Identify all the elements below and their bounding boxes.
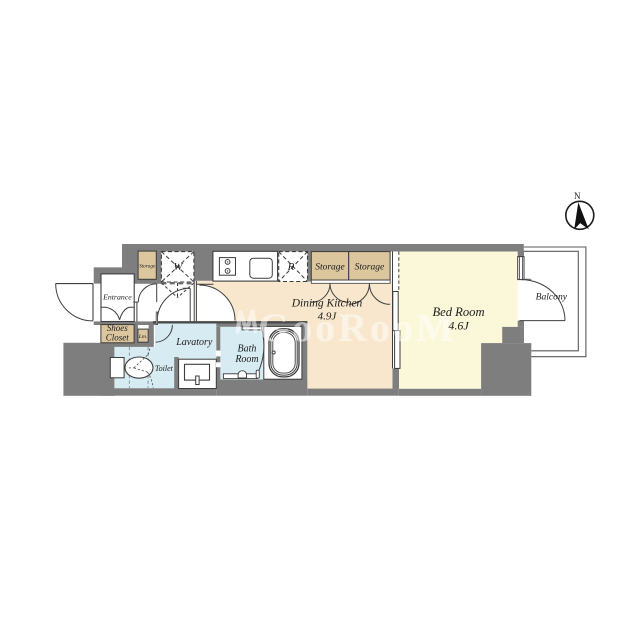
- svg-text:Dining Kitchen: Dining Kitchen: [291, 298, 363, 310]
- svg-text:Lm.: Lm.: [138, 334, 148, 340]
- svg-text:R: R: [287, 261, 295, 273]
- svg-text:4.6J: 4.6J: [448, 319, 469, 333]
- svg-text:W: W: [173, 261, 183, 273]
- svg-text:Storage: Storage: [355, 262, 385, 272]
- svg-text:GooRooM: GooRooM: [258, 305, 457, 350]
- svg-text:Bath: Bath: [238, 343, 257, 354]
- svg-text:Storage: Storage: [139, 263, 156, 269]
- svg-text:Toilet: Toilet: [155, 364, 174, 373]
- svg-text:Bed Room: Bed Room: [432, 305, 484, 319]
- svg-text:N: N: [574, 191, 581, 201]
- svg-text:Lavatory: Lavatory: [175, 337, 213, 348]
- svg-text:Entrance: Entrance: [102, 293, 132, 302]
- svg-text:Closet: Closet: [106, 332, 130, 342]
- svg-text:4.9J: 4.9J: [318, 310, 338, 322]
- svg-text:Room: Room: [234, 354, 258, 365]
- svg-text:Balcony: Balcony: [536, 292, 568, 303]
- svg-text:Storage: Storage: [315, 262, 345, 272]
